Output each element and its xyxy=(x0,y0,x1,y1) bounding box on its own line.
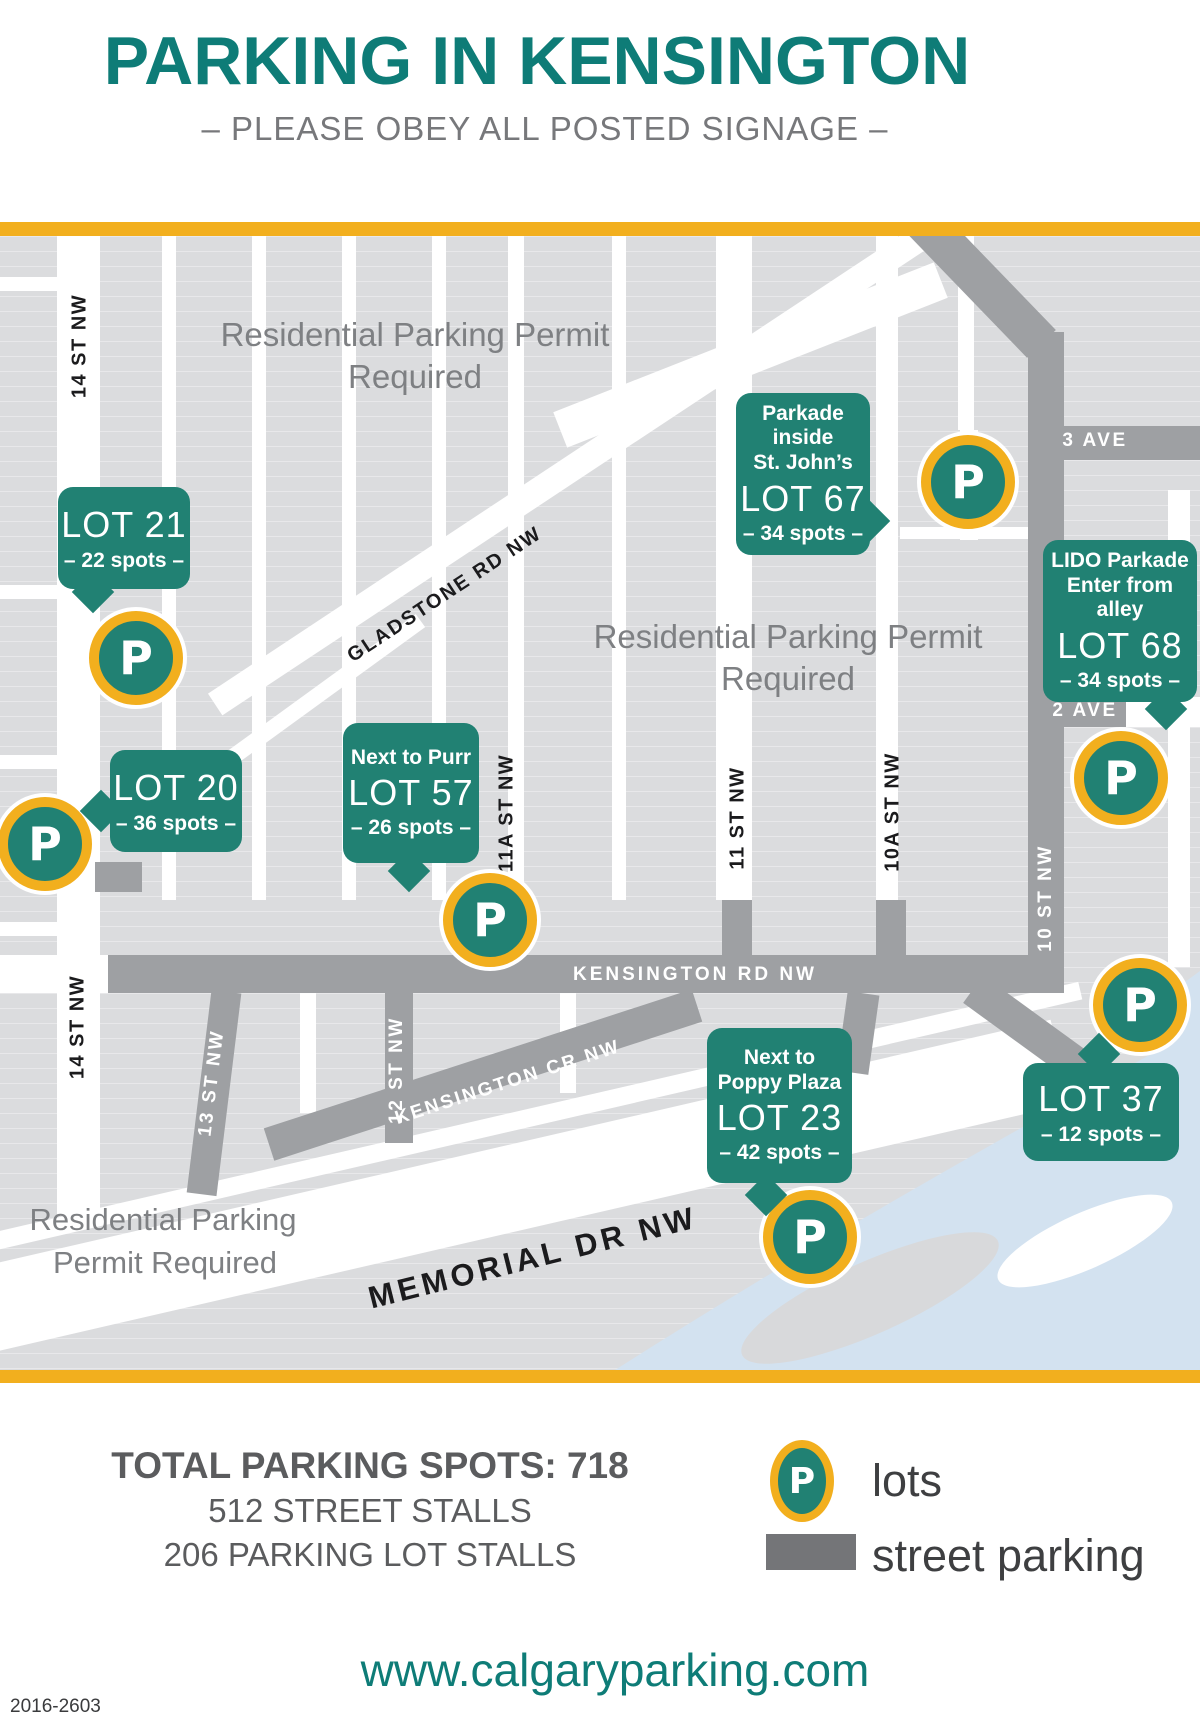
lot-37-p-marker-icon: P xyxy=(1093,958,1187,1052)
lot-57-spots: – 26 spots – xyxy=(343,815,479,840)
lot-68-p-marker-icon: P xyxy=(1074,731,1168,825)
lot-23-note-line2: Poppy Plaza xyxy=(707,1071,852,1095)
kensington-map: Residential Parking Permit Required Resi… xyxy=(0,236,1200,1370)
lot-67-p-marker-icon: P xyxy=(921,435,1015,529)
lot-20-name: LOT 20 xyxy=(110,766,242,809)
lot-68-name: LOT 68 xyxy=(1043,624,1197,667)
lot-23-callout: Next to Poppy Plaza LOT 23 – 42 spots – xyxy=(707,1028,852,1183)
lot-57-name: LOT 57 xyxy=(343,771,479,814)
lot-68-callout: LIDO Parkade Enter from alley LOT 68 – 3… xyxy=(1043,540,1197,702)
label-11st: 11 ST NW xyxy=(727,766,750,869)
label-10st: 10 ST NW xyxy=(1035,844,1057,952)
p-letter: P xyxy=(1104,751,1138,805)
lot-57-p-marker-icon: P xyxy=(443,873,537,967)
totals-block: TOTAL PARKING SPOTS: 718 512 STREET STAL… xyxy=(60,1443,680,1577)
lot-21-p-marker-icon: P xyxy=(89,611,183,705)
p-letter: P xyxy=(473,893,507,947)
page-title: PARKING IN KENSINGTON xyxy=(104,22,970,100)
bottom-divider-bar xyxy=(0,1370,1200,1383)
permit-note-bottom-line2: Permit Required xyxy=(53,1245,277,1281)
permit-note-top-line2: Required xyxy=(348,358,482,396)
document-code: 2016-2603 xyxy=(10,1696,101,1718)
p-letter: P xyxy=(951,455,985,509)
label-11ast: 11A ST NW xyxy=(496,754,519,872)
label-14st-north: 14 ST NW xyxy=(69,294,92,398)
lot-68-note-line1: LIDO Parkade xyxy=(1043,549,1197,573)
lot-23-name: LOT 23 xyxy=(707,1096,852,1139)
lot-68-note-line2: Enter from alley xyxy=(1043,574,1197,622)
lot-68-spots: – 34 spots – xyxy=(1043,668,1197,693)
permit-note-top-line1: Residential Parking Permit xyxy=(221,316,610,354)
legend-lot-icon: P xyxy=(770,1440,834,1522)
lot-21-callout: LOT 21 – 22 spots – xyxy=(58,487,190,589)
label-10ast: 10A ST NW xyxy=(882,752,905,871)
permit-note-mid-line1: Residential Parking Permit xyxy=(594,618,983,656)
lot-37-callout: LOT 37 – 12 spots – xyxy=(1023,1063,1179,1161)
lot-20-p-marker-icon: P xyxy=(0,797,92,891)
label-14st-south: 14 ST NW xyxy=(67,975,90,1079)
lot-23-spots: – 42 spots – xyxy=(707,1140,852,1165)
p-letter: P xyxy=(789,1461,815,1502)
lot-67-callout: Parkade inside St. John’s LOT 67 – 34 sp… xyxy=(736,393,870,555)
permit-note-mid-line2: Required xyxy=(721,660,855,698)
p-letter: P xyxy=(119,631,153,685)
lot-37-name: LOT 37 xyxy=(1023,1077,1179,1120)
lot-37-spots: – 12 spots – xyxy=(1023,1122,1179,1147)
label-kensington-rd: KENSINGTON RD NW xyxy=(573,964,817,986)
lot-20-spots: – 36 spots – xyxy=(110,811,242,836)
top-divider-bar xyxy=(0,222,1200,236)
lot-67-note-line2: St. John’s xyxy=(736,451,870,475)
page-subtitle: – PLEASE OBEY ALL POSTED SIGNAGE – xyxy=(202,110,889,148)
permit-note-bottom-line1: Residential Parking xyxy=(29,1202,296,1238)
legend-street-parking-swatch xyxy=(766,1534,856,1570)
legend-street-parking-label: street parking xyxy=(872,1530,1145,1582)
label-2ave: 2 AVE xyxy=(1052,700,1117,722)
lot-21-name: LOT 21 xyxy=(58,503,190,546)
total-spots-text: TOTAL PARKING SPOTS: 718 xyxy=(60,1443,680,1489)
lot-23-note-line1: Next to xyxy=(707,1046,852,1070)
lot-67-spots: – 34 spots – xyxy=(736,521,870,546)
legend-lots-label: lots xyxy=(872,1455,942,1507)
lot-20-callout: LOT 20 – 36 spots – xyxy=(110,750,242,852)
p-letter: P xyxy=(28,817,62,871)
parking-poster: PARKING IN KENSINGTON – PLEASE OBEY ALL … xyxy=(0,0,1200,1734)
p-letter: P xyxy=(793,1210,827,1264)
lot-57-callout: Next to Purr LOT 57 – 26 spots – xyxy=(343,723,479,863)
lot-67-note-line1: Parkade inside xyxy=(736,402,870,450)
lot-67-name: LOT 67 xyxy=(736,477,870,520)
label-3ave: 3 AVE xyxy=(1062,430,1127,452)
lot-21-spots: – 22 spots – xyxy=(58,548,190,573)
p-letter: P xyxy=(1123,978,1157,1032)
street-stalls-text: 512 STREET STALLS xyxy=(60,1489,680,1533)
lot-57-note: Next to Purr xyxy=(343,746,479,770)
website-url: www.calgaryparking.com xyxy=(361,1643,870,1697)
lot-stalls-text: 206 PARKING LOT STALLS xyxy=(60,1533,680,1577)
